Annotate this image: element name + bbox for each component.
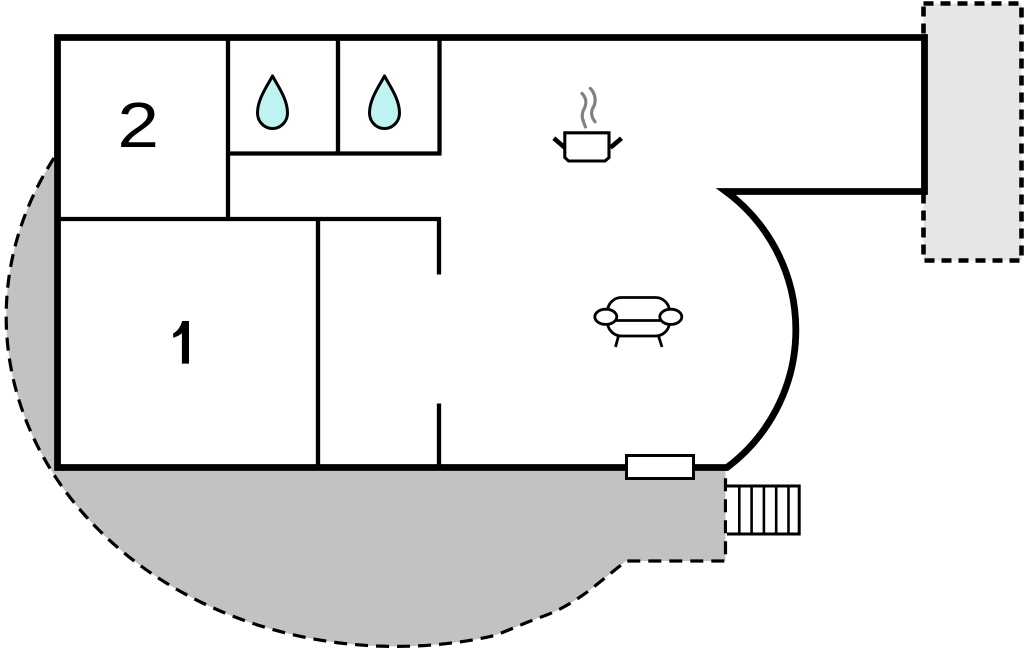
svg-text:2: 2: [117, 89, 159, 161]
